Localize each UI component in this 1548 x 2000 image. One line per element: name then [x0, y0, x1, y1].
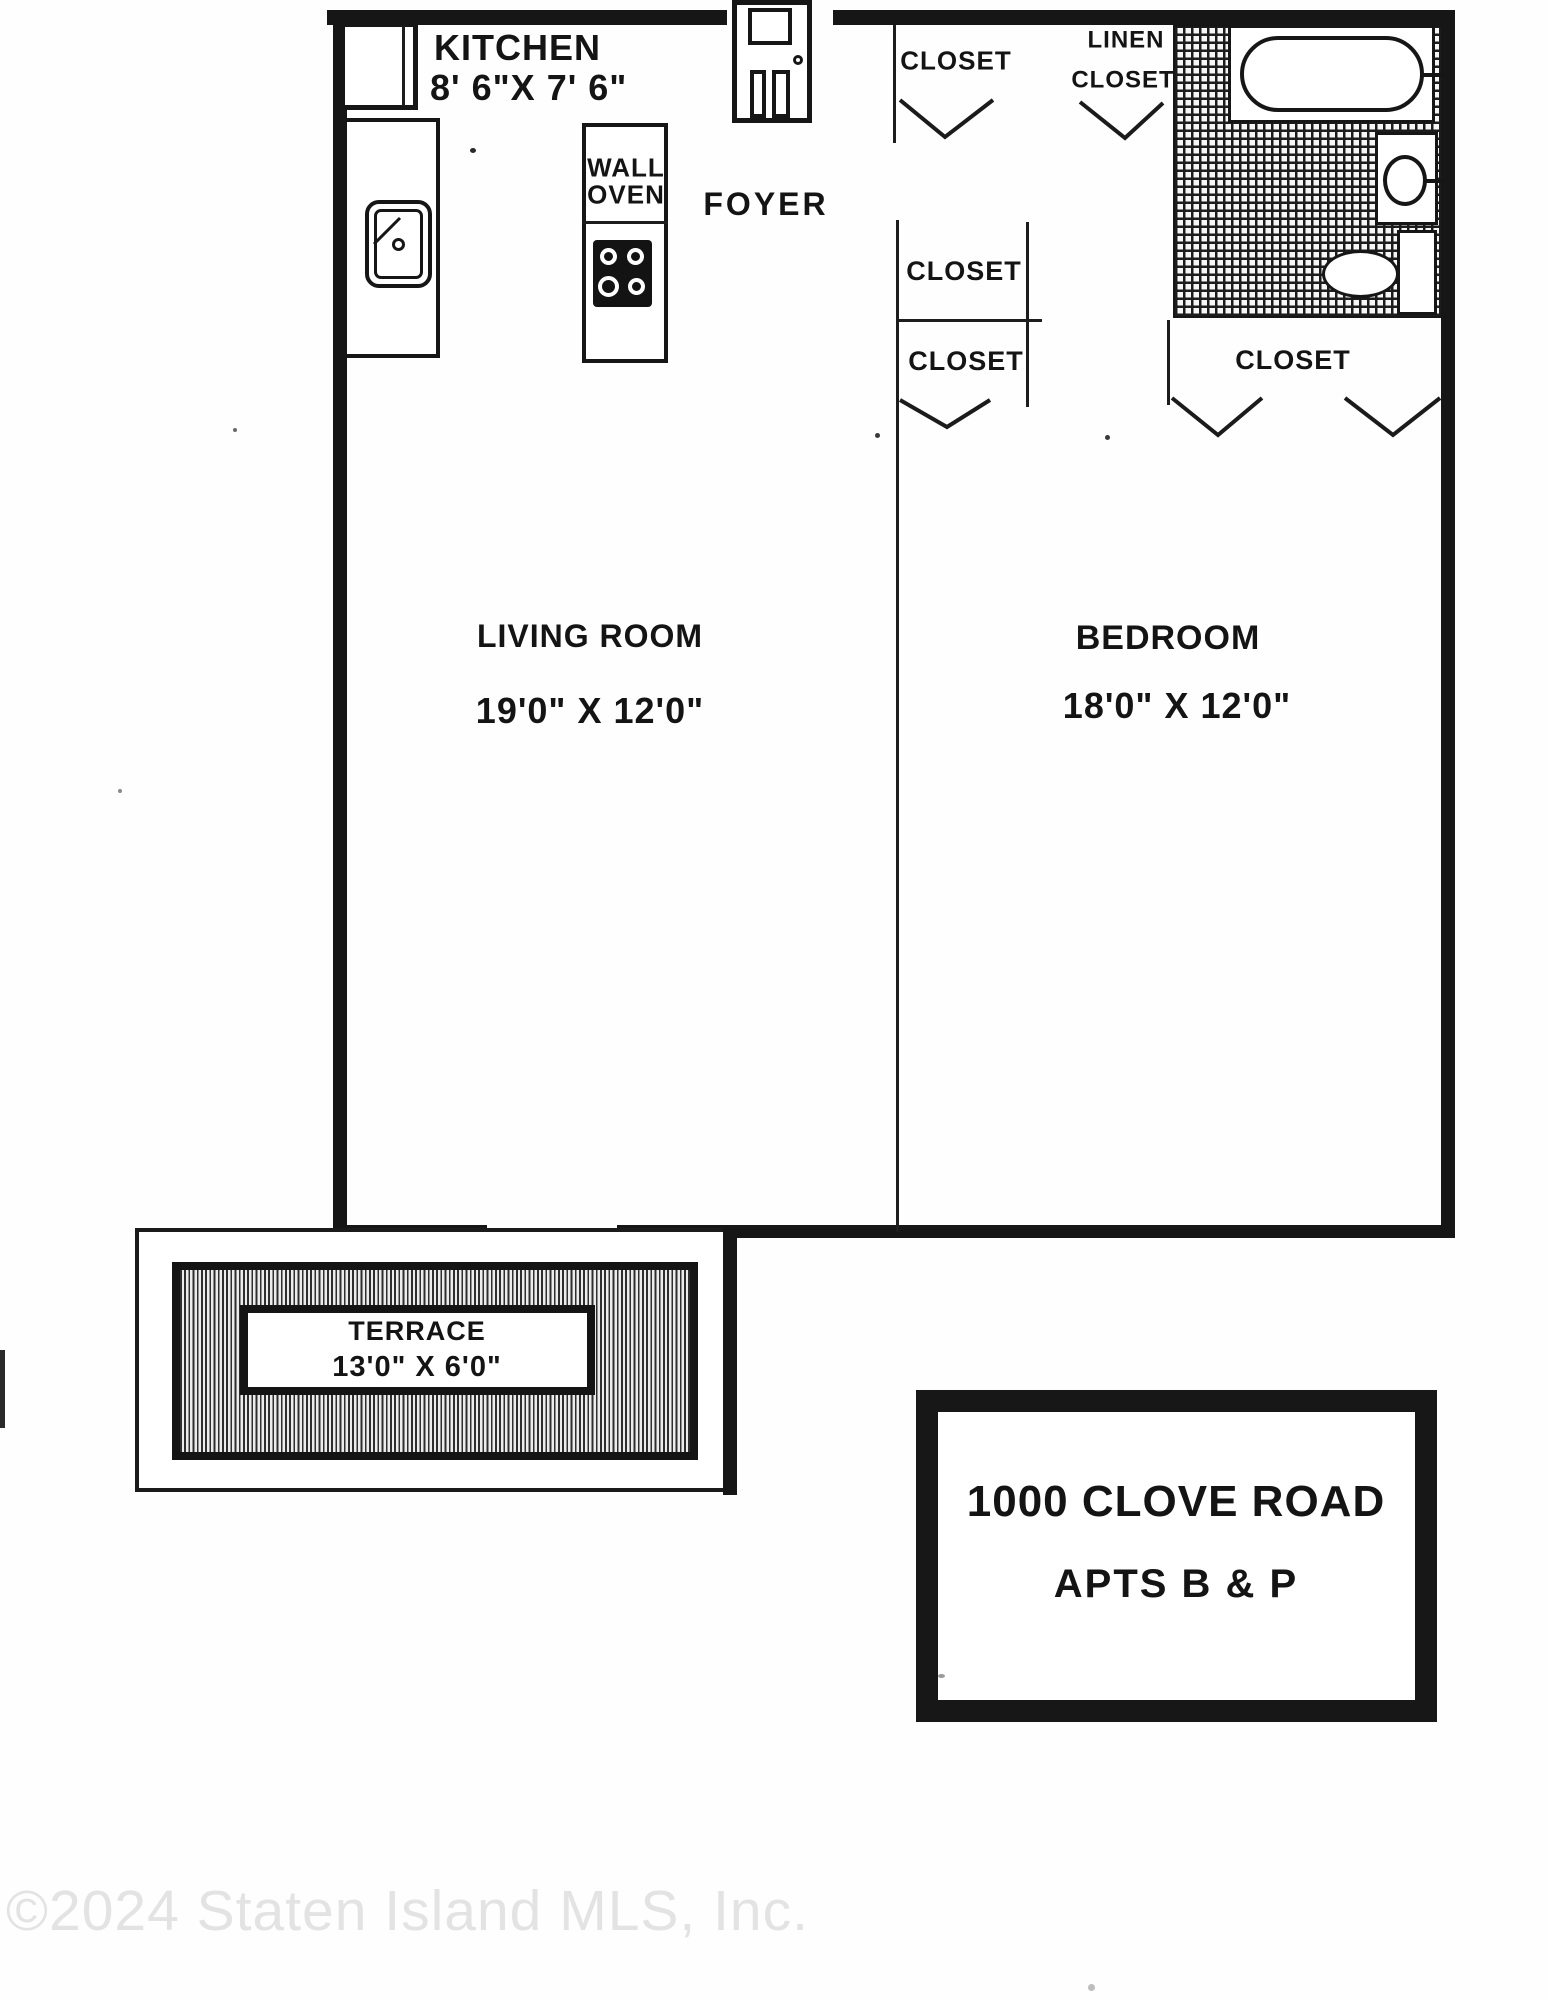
- bedroom-closet-left-wall: [1167, 320, 1170, 405]
- burner-top-left: [600, 248, 617, 265]
- hall-closet-upper-label: CLOSET: [906, 257, 1022, 285]
- hall-closet-divider: [896, 319, 1042, 322]
- address-sign-line1: 1000 CLOVE ROAD: [967, 1479, 1385, 1525]
- toilet-tank: [1397, 230, 1437, 315]
- mls-watermark: ©2024 Staten Island MLS, Inc.: [6, 1878, 809, 1944]
- scan-speck: [1088, 1984, 1095, 1991]
- living-room-dimensions: 19'0" X 12'0": [476, 692, 704, 730]
- toilet-bowl: [1322, 250, 1399, 298]
- bathtub-faucet-line: [1420, 70, 1444, 80]
- wall-oven-label: WALL OVEN: [587, 155, 665, 210]
- linen-closet-door-swing: [1076, 98, 1168, 144]
- bedroom-label: BEDROOM: [1076, 621, 1261, 657]
- terrace-label: TERRACE: [348, 1317, 486, 1345]
- floor-plan-scan: TERRACE 13'0" X 6'0" WALL OVEN KITCHEN 8…: [0, 0, 1548, 2000]
- foyer-label: FOYER: [703, 188, 828, 222]
- address-sign-line2: APTS B & P: [1054, 1563, 1298, 1605]
- entry-door-panel-left: [750, 70, 766, 118]
- bedroom-closet-door-swing-right: [1341, 394, 1445, 440]
- entry-door-top-panel: [748, 8, 792, 45]
- kitchen-label: KITCHEN: [434, 29, 601, 67]
- bathroom-sink-faucet-line: [1424, 176, 1444, 186]
- foyer-closet-label: CLOSET: [900, 47, 1011, 74]
- bedroom-dimensions: 18'0" X 12'0": [1063, 687, 1291, 725]
- bathroom-sink-bowl: [1383, 155, 1427, 206]
- living-bedroom-partition: [896, 220, 899, 1232]
- linen-closet-label-line2: CLOSET: [1071, 67, 1174, 92]
- foyer-closet-door-swing: [896, 96, 998, 142]
- burner-bottom-left: [598, 276, 619, 297]
- scan-speck: [1105, 435, 1110, 440]
- burner-top-right: [627, 248, 644, 265]
- bottom-wall-right-segment: [617, 1225, 1455, 1238]
- hall-closet-right-wall: [1026, 222, 1029, 407]
- scan-edge-mark: [0, 1350, 5, 1428]
- hall-closet-door-swing: [896, 396, 995, 436]
- scan-speck: [470, 148, 476, 153]
- entry-door-panel-right: [772, 70, 790, 118]
- top-wall-right-segment: [833, 10, 1455, 25]
- bedroom-closet-label: CLOSET: [1235, 346, 1351, 374]
- refrigerator-door-line: [402, 26, 405, 106]
- kitchen-dimensions: 8' 6"X 7' 6": [430, 69, 627, 107]
- scan-speck: [875, 433, 880, 438]
- living-room-label: LIVING ROOM: [477, 620, 703, 654]
- terrace-side-wall-stub: [723, 1225, 737, 1495]
- scan-speck: [118, 789, 122, 793]
- sink-drain: [392, 238, 405, 251]
- linen-closet-label-line1: LINEN: [1088, 27, 1165, 52]
- hall-closet-lower-label: CLOSET: [908, 347, 1024, 375]
- bathtub: [1240, 36, 1424, 112]
- address-sign-box: [916, 1390, 1437, 1722]
- scan-speck: [233, 428, 237, 432]
- wall-oven-divider: [582, 221, 668, 224]
- refrigerator: [340, 22, 418, 110]
- terrace-dimensions: 13'0" X 6'0": [332, 1352, 501, 1382]
- burner-bottom-right: [628, 278, 645, 295]
- scan-speck: [938, 1674, 945, 1678]
- entry-door-knob: [793, 55, 803, 65]
- bedroom-closet-door-swing-left: [1168, 394, 1267, 440]
- right-wall: [1441, 10, 1455, 1237]
